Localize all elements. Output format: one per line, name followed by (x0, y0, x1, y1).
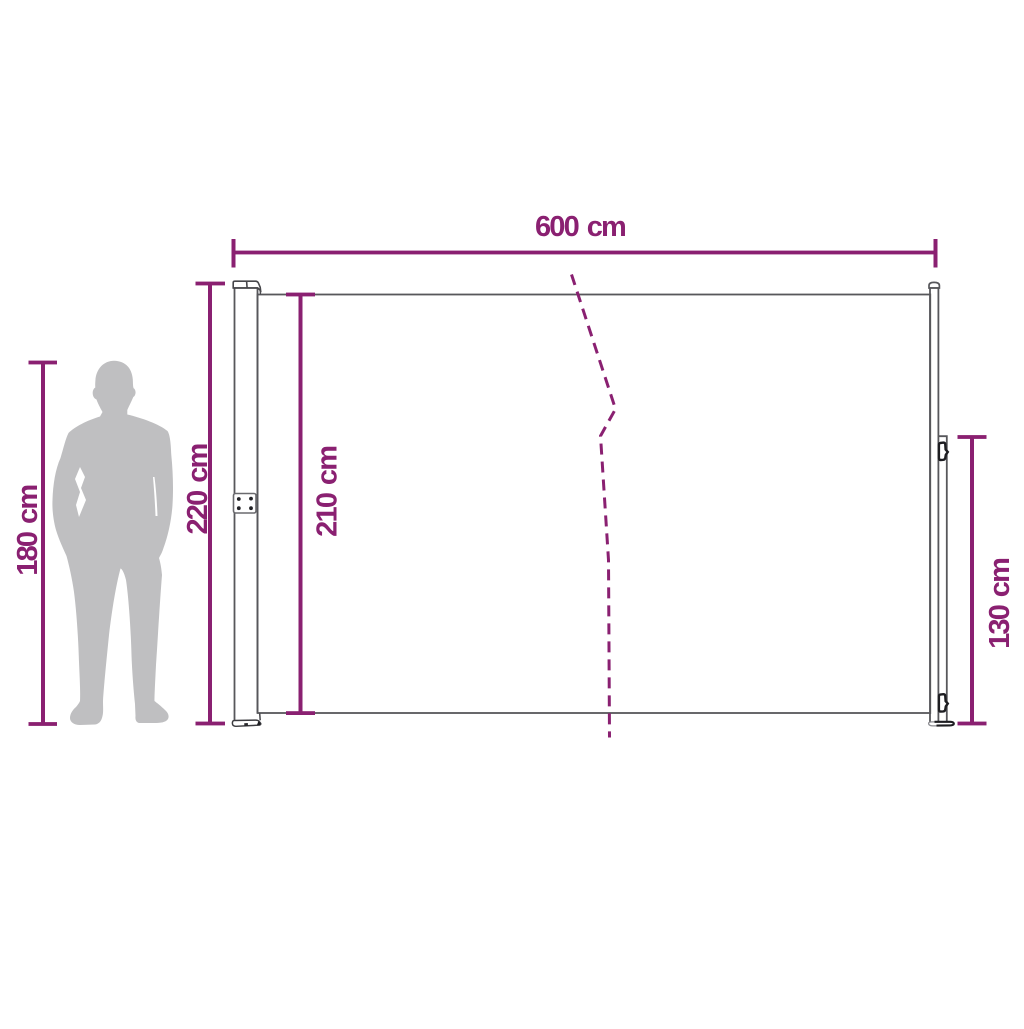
svg-text:130 cm: 130 cm (984, 559, 1016, 649)
svg-text:180 cm: 180 cm (12, 486, 44, 576)
svg-text:220 cm: 220 cm (182, 444, 214, 534)
svg-text:600 cm: 600 cm (535, 211, 625, 243)
svg-text:210 cm: 210 cm (312, 447, 344, 537)
